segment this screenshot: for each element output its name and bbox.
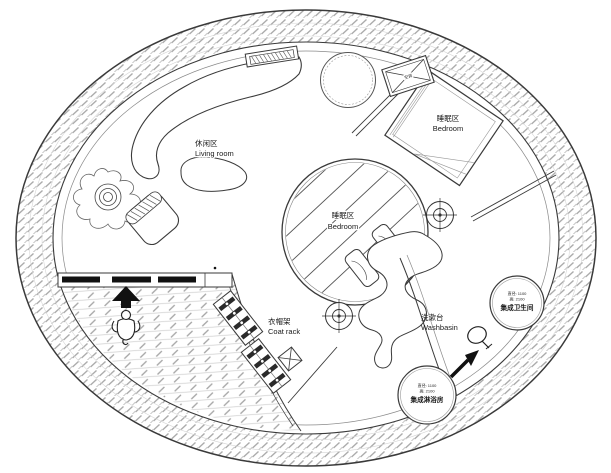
shower-pod-name: 集成淋浴房 bbox=[410, 395, 444, 404]
bedroom-center-label-en: Bedroom bbox=[328, 222, 358, 231]
toilet-pod-height: 高: 2100 bbox=[509, 296, 525, 302]
coat-rack-label-en: Coat rack bbox=[268, 327, 300, 336]
south-wall bbox=[58, 273, 232, 287]
bedroom-upper-label-zh: 睡眠区 bbox=[437, 114, 460, 123]
living-room-label-en: Living room bbox=[195, 149, 234, 158]
toilet-pod-name: 集成卫生间 bbox=[500, 303, 534, 312]
floor-plan-canvas: 空调 睡眠区 Bedroom 睡眠区 Bedroom bbox=[0, 0, 611, 473]
glass-door-panel bbox=[112, 277, 151, 283]
shower-pod-height: 高: 2100 bbox=[419, 388, 435, 394]
toilet-pod-circle: 直径: 1100 高: 2100 集成卫生间 bbox=[490, 276, 544, 330]
washbasin-label-en: Washbasin bbox=[421, 323, 458, 332]
toilet-pod-diameter: 直径: 1100 bbox=[508, 290, 528, 296]
shower-pod-diameter: 直径: 1100 bbox=[418, 382, 438, 388]
bedroom-upper-label-en: Bedroom bbox=[433, 124, 463, 133]
glass-door-panel bbox=[62, 277, 100, 283]
floor-plan-drawing: 空调 睡眠区 Bedroom 睡眠区 Bedroom bbox=[0, 0, 611, 473]
living-room-label-zh: 休闲区 bbox=[195, 138, 218, 148]
round-table bbox=[321, 53, 376, 108]
glass-door-panel bbox=[158, 277, 196, 283]
reference-dot bbox=[214, 267, 217, 270]
bedroom-center-label-zh: 睡眠区 bbox=[332, 211, 355, 220]
shower-pod-circle: 直径: 1100 高: 2100 集成淋浴房 bbox=[398, 366, 456, 424]
coat-rack-label-zh: 衣帽架 bbox=[268, 316, 291, 326]
washbasin-label-zh: 洗漱台 bbox=[421, 312, 444, 322]
